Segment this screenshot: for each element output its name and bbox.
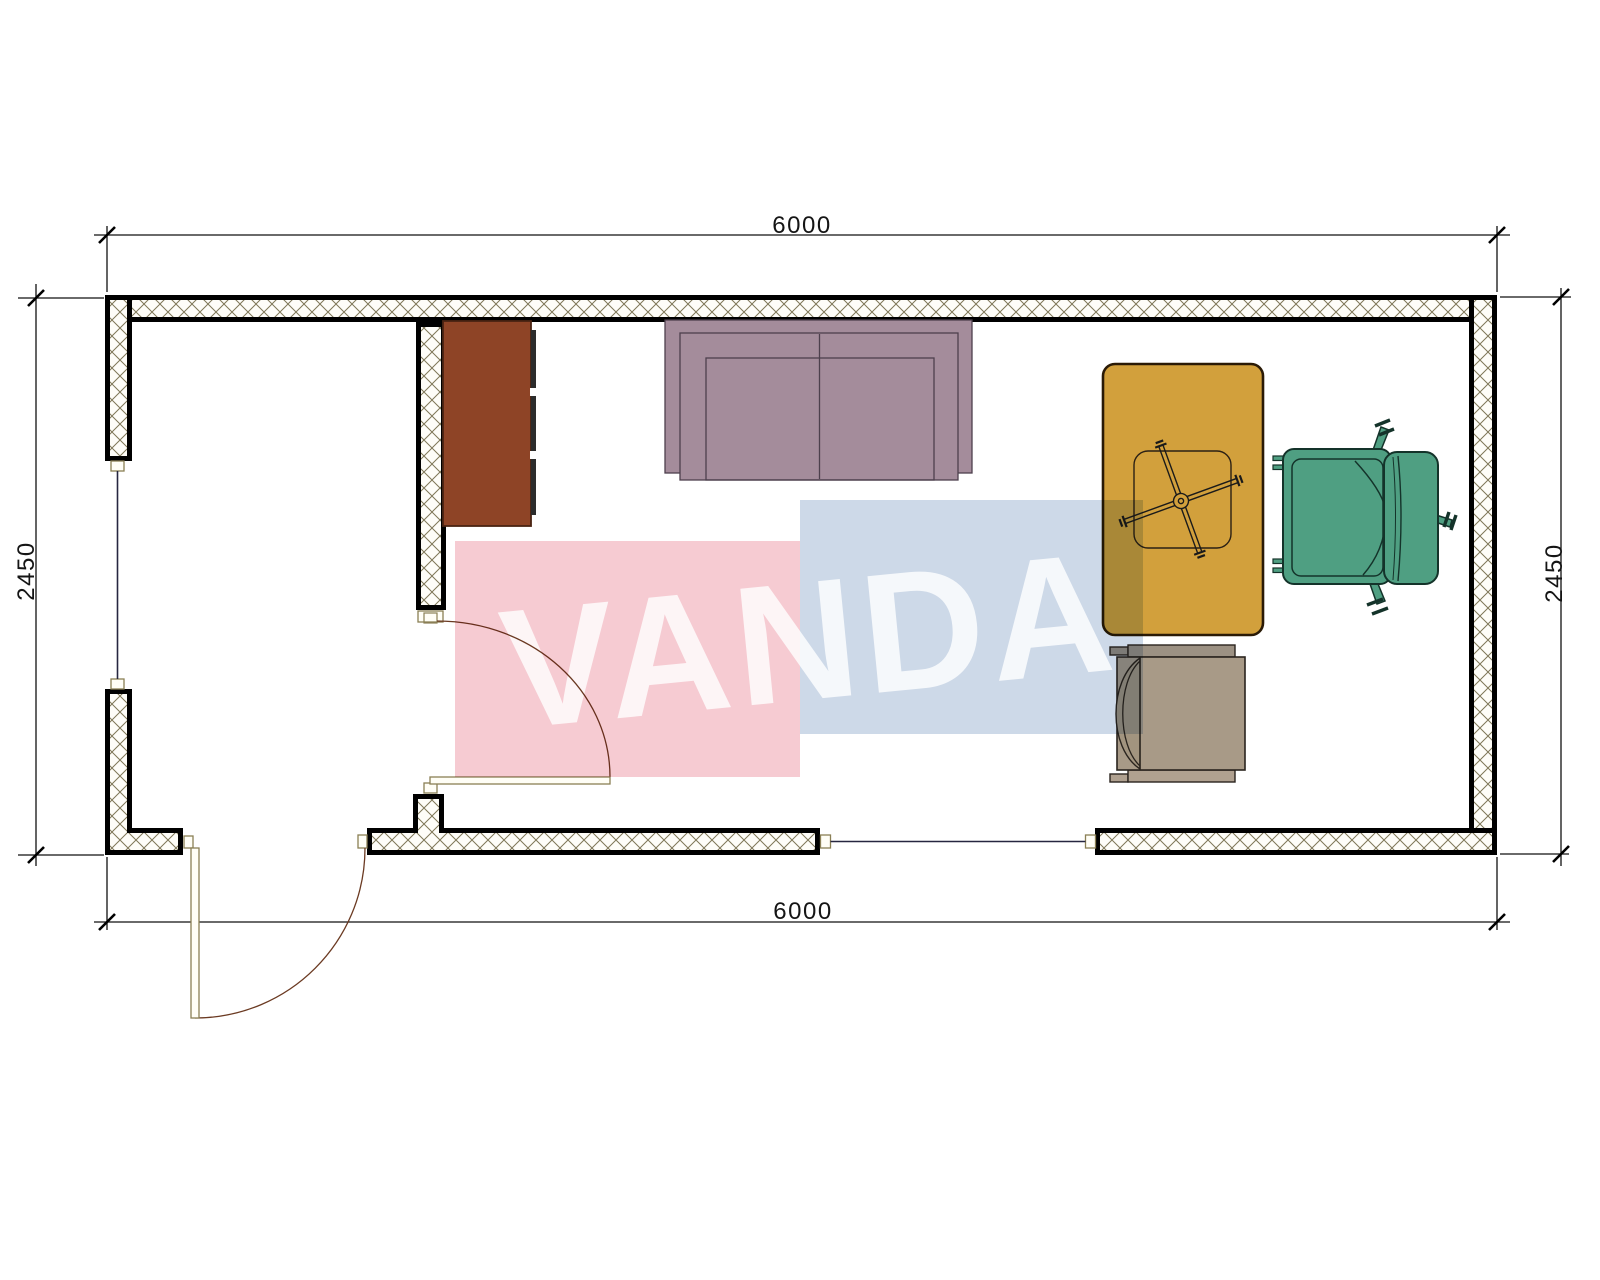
svg-text:6000: 6000: [772, 212, 831, 239]
svg-text:6000: 6000: [773, 898, 832, 925]
svg-text:2450: 2450: [1541, 543, 1568, 602]
svg-text:2450: 2450: [13, 541, 40, 600]
